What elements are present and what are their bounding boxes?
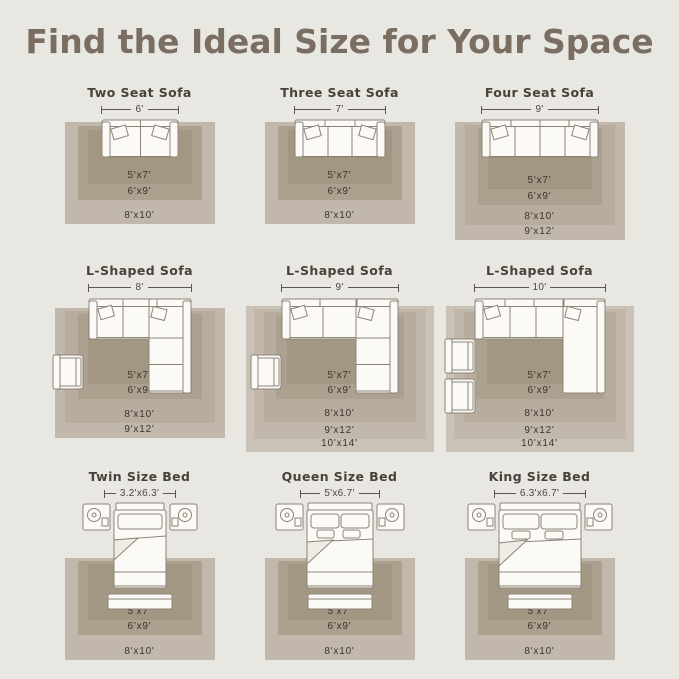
ruler-line	[148, 109, 178, 110]
rug-size-label: 9'x12'	[455, 226, 625, 237]
panel-title: Four Seat Sofa	[485, 85, 594, 101]
panel-title: Queen Size Bed	[282, 469, 398, 485]
rug-size-label: 6'x9'	[78, 621, 202, 632]
rug-size-label: 8'x10'	[264, 408, 416, 419]
armchair-illustration	[250, 354, 282, 390]
panel-title: L-Shaped Sofa	[486, 263, 593, 279]
ruler-value: 9'	[331, 282, 347, 293]
ruler-line	[295, 109, 332, 110]
l-shaped-sofa-illustration	[281, 298, 399, 394]
panel-title: L-Shaped Sofa	[86, 263, 193, 279]
ruler-tick-right	[598, 106, 599, 114]
rug-size-label: 10'x14'	[446, 438, 634, 449]
rug-size-label: 8'x10'	[65, 646, 215, 657]
ruler-tick-right	[605, 284, 606, 292]
king-bed-illustration	[467, 502, 613, 610]
armchair-illustration	[444, 378, 476, 414]
panel-title: Two Seat Sofa	[87, 85, 192, 101]
rug-size-label: 6'x9'	[278, 186, 402, 197]
armchair-illustration	[52, 354, 84, 390]
rug-size-label: 5'x7'	[488, 175, 592, 186]
ruler-line	[163, 493, 174, 494]
ruler-tick-right	[178, 106, 179, 114]
layout-scene: 10'x14' 9'x12' 8'x10' 6'x9' 5'x7'	[240, 296, 440, 455]
l-shaped-sofa-illustration	[474, 298, 606, 394]
ruler-value: 10'	[529, 282, 551, 293]
layout-scene: 9'x12' 8'x10' 6'x9' 5'x7'	[40, 296, 240, 455]
panel-title: L-Shaped Sofa	[286, 263, 393, 279]
rug-size-label: 6'x9'	[478, 621, 602, 632]
three-seat-sofa-illustration	[294, 118, 386, 158]
panel-king-size-bed: King Size Bed 6.3'x6.7' 8'x10' 6'x9' 5'x…	[440, 469, 640, 665]
ruler-tick-right	[191, 284, 192, 292]
panel-three-seat-sofa: Three Seat Sofa 7' 8'x10' 6'x9' 5'x7'	[240, 85, 440, 249]
ruler-value: 8'	[131, 282, 147, 293]
ruler-tick-right	[398, 284, 399, 292]
layout-scene: 8'x10' 6'x9' 5'x7'	[240, 502, 440, 665]
rug-size-label: 8'x10'	[465, 646, 615, 657]
dimension-ruler: 9'	[481, 104, 599, 115]
ruler-value: 5'x6.7'	[320, 488, 358, 499]
panel-two-seat-sofa: Two Seat Sofa 6' 8'x10' 6'x9' 5'x7'	[40, 85, 240, 249]
rug-size-label: 8'x10'	[465, 211, 615, 222]
rug-size-label: 8'x10'	[464, 408, 616, 419]
ruler-line	[359, 493, 379, 494]
panel-l-shaped-sofa-9: L-Shaped Sofa 9' 10'x14' 9'x12' 8'x10' 6…	[240, 263, 440, 455]
ruler-value: 6.3'x6.7'	[516, 488, 563, 499]
layout-scene: 8'x10' 6'x9' 5'x7'	[40, 118, 240, 249]
layout-scene: 8'x10' 6'x9' 5'x7'	[440, 502, 640, 665]
rug-size-label: 6'x9'	[278, 621, 402, 632]
dimension-ruler: 6.3'x6.7'	[494, 488, 586, 499]
dimension-ruler: 10'	[474, 282, 606, 293]
ruler-line	[550, 287, 604, 288]
panel-title: Three Seat Sofa	[280, 85, 399, 101]
panel-l-shaped-sofa-8: L-Shaped Sofa 8' 9'x12' 8'x10' 6'x9' 5'x…	[40, 263, 240, 455]
ruler-value: 3.2'x6.3'	[116, 488, 163, 499]
rug-size-label: 8'x10'	[265, 210, 415, 221]
ruler-tick-right	[585, 490, 586, 498]
ruler-value: 9'	[531, 104, 547, 115]
two-seat-sofa-illustration	[101, 118, 179, 158]
panel-twin-size-bed: Twin Size Bed 3.2'x6.3' 8'x10' 6'x9' 5'x…	[40, 469, 240, 665]
dimension-ruler: 6'	[101, 104, 179, 115]
ruler-tick-right	[175, 490, 176, 498]
panel-title: Twin Size Bed	[89, 469, 191, 485]
layout-scene: 9'x12' 8'x10' 6'x9' 5'x7'	[440, 118, 640, 249]
ruler-line	[89, 287, 132, 288]
ruler-line	[563, 493, 584, 494]
rug-size-label: 5'x7'	[88, 170, 192, 181]
ruler-line	[348, 109, 385, 110]
ruler-line	[105, 493, 116, 494]
panel-title: King Size Bed	[489, 469, 591, 485]
dimension-ruler: 7'	[294, 104, 386, 115]
ruler-line	[301, 493, 321, 494]
layout-scene: 8'x10' 6'x9' 5'x7'	[240, 118, 440, 249]
ruler-line	[102, 109, 132, 110]
panel-four-seat-sofa: Four Seat Sofa 9' 9'x12' 8'x10' 6'x9' 5'…	[440, 85, 640, 249]
ruler-value: 7'	[331, 104, 347, 115]
ruler-line	[148, 287, 191, 288]
ruler-line	[495, 493, 516, 494]
rug-size-guide: Find the Ideal Size for Your Space Two S…	[0, 0, 679, 679]
rug-size-label: 9'x12'	[55, 424, 225, 435]
panel-queen-size-bed: Queen Size Bed 5'x6.7' 8'x10' 6'x9' 5'x7…	[240, 469, 440, 665]
rug-size-label: 8'x10'	[65, 210, 215, 221]
ruler-line	[475, 287, 529, 288]
ruler-value: 6'	[131, 104, 147, 115]
rug-size-label: 6'x9'	[78, 186, 202, 197]
ruler-line	[282, 287, 332, 288]
queen-bed-illustration	[275, 502, 405, 610]
rug-size-label: 9'x12'	[254, 425, 426, 436]
guide-grid: Two Seat Sofa 6' 8'x10' 6'x9' 5'x7'	[0, 85, 679, 665]
dimension-ruler: 9'	[281, 282, 399, 293]
dimension-ruler: 3.2'x6.3'	[104, 488, 176, 499]
rug-size-label: 8'x10'	[265, 646, 415, 657]
rug-size-label: 10'x14'	[246, 438, 434, 449]
page-title: Find the Ideal Size for Your Space	[0, 22, 679, 61]
l-shaped-sofa-illustration	[88, 298, 192, 394]
ruler-line	[348, 287, 398, 288]
rug-size-label: 5'x7'	[288, 170, 392, 181]
ruler-tick-right	[379, 490, 380, 498]
armchair-illustration	[444, 338, 476, 374]
rug-size-label: 9'x12'	[454, 425, 626, 436]
dimension-ruler: 5'x6.7'	[300, 488, 380, 499]
ruler-line	[548, 109, 598, 110]
twin-bed-illustration	[82, 502, 198, 610]
rug-size-label: 6'x9'	[478, 191, 602, 202]
ruler-tick-right	[385, 106, 386, 114]
layout-scene: 8'x10' 6'x9' 5'x7'	[40, 502, 240, 665]
layout-scene: 10'x14' 9'x12' 8'x10' 6'x9' 5'x7'	[440, 296, 640, 455]
ruler-line	[482, 109, 532, 110]
dimension-ruler: 8'	[88, 282, 192, 293]
rug-size-label: 8'x10'	[65, 409, 215, 420]
four-seat-sofa-illustration	[481, 118, 599, 158]
panel-l-shaped-sofa-10: L-Shaped Sofa 10' 10'x14' 9'x12' 8'x10' …	[440, 263, 640, 455]
